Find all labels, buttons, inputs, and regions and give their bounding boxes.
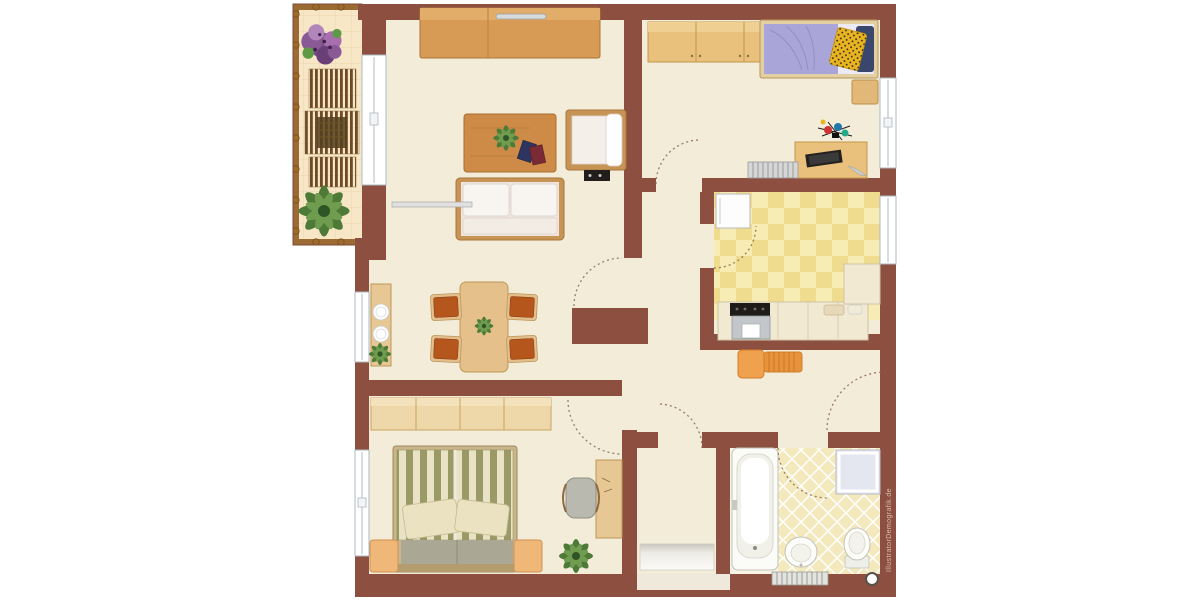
- bathtub: [732, 448, 778, 570]
- desk-chair: [563, 478, 599, 518]
- sideboard-handle: [496, 14, 546, 19]
- stove-with-oven: [730, 303, 770, 339]
- watermark-text: IllustratorDemografik.de: [886, 488, 893, 572]
- serving-table: [369, 284, 391, 366]
- nightstand: [514, 540, 542, 572]
- wardrobe-sideboard: [371, 398, 551, 430]
- dining-chair: [506, 335, 537, 363]
- counter-items: [824, 305, 862, 315]
- door-stopper: [866, 573, 878, 585]
- patio-furniture-set: [305, 69, 359, 187]
- coffee-table: [464, 114, 556, 172]
- kitchen-window: [880, 196, 896, 264]
- sofa: [456, 178, 564, 240]
- footboard: [395, 564, 515, 572]
- dining-chair: [430, 335, 461, 363]
- plate: [373, 304, 389, 320]
- double-bed: [393, 446, 517, 572]
- entrance-vestibule: [640, 544, 714, 570]
- sideboard: [420, 8, 600, 58]
- washbasin: [785, 537, 817, 567]
- stereo: [584, 170, 610, 181]
- balcony-plant: [299, 186, 350, 237]
- bedroom-window: [355, 450, 369, 556]
- single-bed: [760, 20, 878, 78]
- children-window: [880, 78, 896, 168]
- dining-chair: [430, 293, 461, 321]
- plate: [373, 326, 389, 342]
- doormat: [640, 544, 714, 570]
- side-unit: [852, 80, 878, 104]
- balcony-door-window: [362, 55, 386, 185]
- armchair: [566, 110, 626, 170]
- nightstand: [370, 540, 398, 572]
- dining-chair: [506, 293, 537, 321]
- floor-plan: IllustratorDemografik.de: [0, 0, 1200, 600]
- dining-table: [460, 282, 508, 372]
- bedroom-plant: [559, 539, 593, 573]
- shower: [836, 450, 880, 494]
- bathroom-radiator: [772, 572, 828, 585]
- living-radiator: [392, 202, 472, 207]
- pillow: [454, 499, 510, 537]
- children-desk: [795, 142, 867, 178]
- dining-window: [355, 292, 369, 362]
- pillow: [402, 498, 460, 539]
- fridge: [716, 194, 750, 228]
- entrance-threshold: [637, 574, 730, 590]
- balcony: [293, 4, 362, 245]
- toilet: [844, 528, 870, 568]
- children-radiator: [748, 162, 798, 178]
